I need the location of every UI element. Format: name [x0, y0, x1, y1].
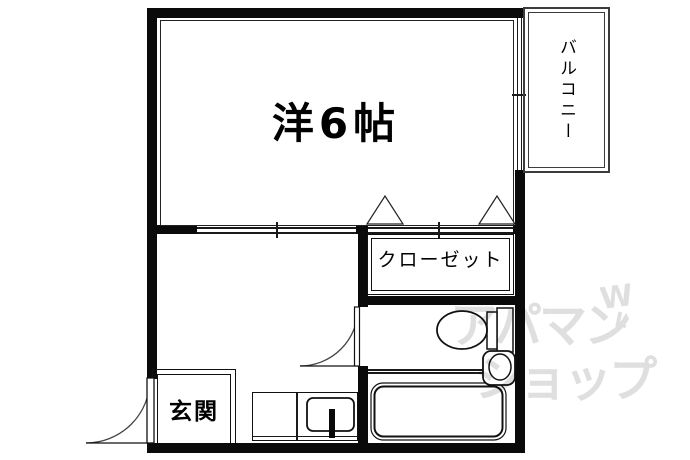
- floorplan-canvas: 洋6帖 バルコニー クローゼット 玄関 アパマン ショップ W L: [0, 0, 690, 460]
- kitchen-sink-fixture: [307, 398, 354, 438]
- room-closet-label: クローゼット: [367, 245, 514, 272]
- room-balcony-label: バルコニー: [523, 7, 610, 173]
- entrance-door-arc: [86, 378, 154, 443]
- toilet-fixture: [437, 308, 513, 352]
- bathroom-door-arc: [300, 307, 360, 366]
- room-main-label: 洋6帖: [157, 90, 515, 151]
- bathtub-fixture: [371, 383, 506, 440]
- closet-folding-door-markers: [367, 196, 515, 224]
- wash-basin-fixture: [483, 351, 515, 385]
- room-entrance-label: 玄関: [152, 392, 236, 426]
